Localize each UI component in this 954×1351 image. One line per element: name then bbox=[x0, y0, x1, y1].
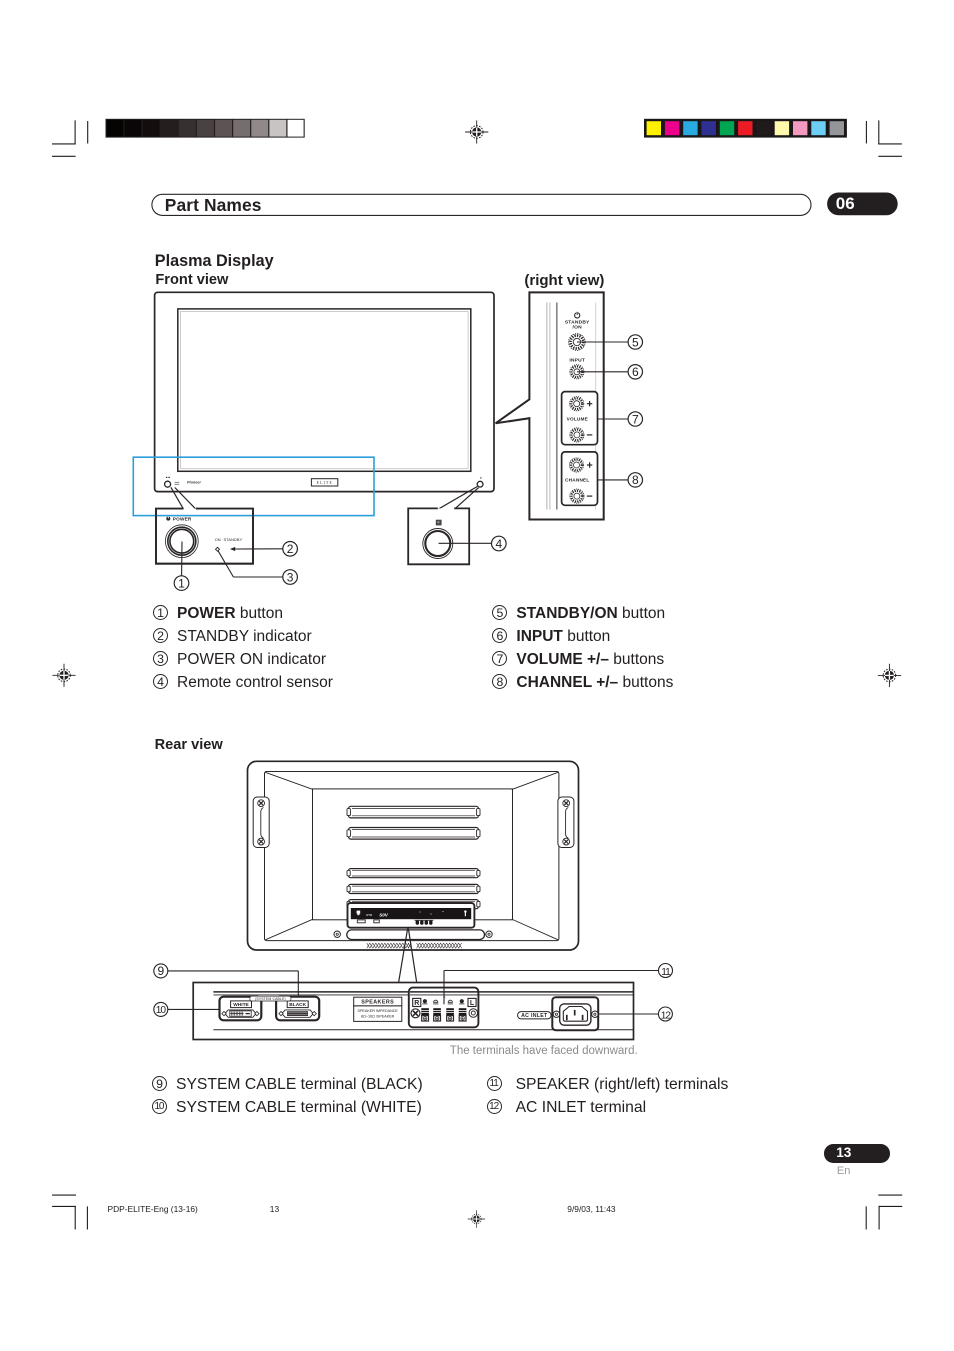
svg-text:S0V: S0V bbox=[379, 913, 389, 918]
svg-text:SPEAKER IMPEDANCE: SPEAKER IMPEDANCE bbox=[358, 1009, 399, 1013]
svg-text:STANDBY: STANDBY bbox=[224, 537, 243, 542]
svg-text:POWER: POWER bbox=[173, 516, 192, 521]
svg-text:7: 7 bbox=[632, 412, 639, 426]
svg-text:(SYSTEM CABLE): (SYSTEM CABLE) bbox=[255, 997, 286, 1001]
svg-text:SPEAKERS: SPEAKERS bbox=[361, 1000, 394, 1006]
svg-text:INPUT: INPUT bbox=[569, 358, 585, 364]
svg-text:4: 4 bbox=[495, 537, 502, 551]
svg-text:CHANNEL: CHANNEL bbox=[565, 477, 589, 482]
svg-text:12: 12 bbox=[661, 1010, 672, 1021]
svg-text:AC INLET: AC INLET bbox=[521, 1013, 548, 1019]
svg-text:10: 10 bbox=[156, 1005, 167, 1016]
svg-text:8Ω~16Ω /SPEAKER: 8Ω~16Ω /SPEAKER bbox=[361, 1014, 395, 1018]
svg-text:BLACK: BLACK bbox=[289, 1002, 306, 1008]
svg-text:ON: ON bbox=[215, 537, 221, 542]
svg-text:9: 9 bbox=[157, 964, 164, 978]
svg-text:ELITE: ELITE bbox=[317, 481, 333, 485]
svg-text:1: 1 bbox=[178, 576, 185, 590]
svg-text:2: 2 bbox=[287, 542, 294, 556]
svg-text:Pioneer: Pioneer bbox=[187, 481, 201, 485]
svg-text:/ON: /ON bbox=[573, 325, 583, 331]
svg-text:11: 11 bbox=[661, 967, 671, 978]
svg-text:STANDBY: STANDBY bbox=[565, 319, 590, 325]
svg-text:R: R bbox=[414, 1000, 419, 1007]
svg-text:5: 5 bbox=[632, 335, 639, 349]
svg-text:STR: STR bbox=[366, 913, 373, 917]
svg-text:6: 6 bbox=[632, 365, 639, 379]
svg-text:VOLUME: VOLUME bbox=[567, 417, 588, 422]
svg-text:8: 8 bbox=[632, 473, 639, 487]
svg-text:WHITE: WHITE bbox=[233, 1002, 249, 1008]
svg-text:L: L bbox=[470, 1000, 475, 1007]
svg-text:3: 3 bbox=[287, 570, 294, 584]
